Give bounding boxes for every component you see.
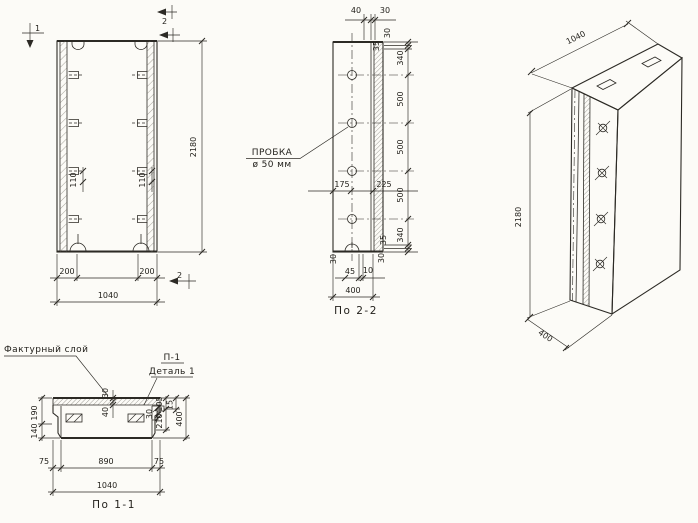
facing-label: Фактурный слой: [4, 345, 88, 355]
dim-190-label: 190: [30, 405, 39, 420]
dim-400-label: 400: [345, 286, 360, 295]
section-2-2-title: По 2-2: [334, 305, 378, 317]
dim-75-right: 75: [154, 457, 164, 466]
left-edge-hatch: [60, 41, 67, 252]
dim-bottom-left-30: 30: [329, 254, 338, 264]
panel-outline: [57, 41, 157, 252]
facing-layer-hatch: [375, 42, 383, 252]
dim-10-label: 10: [363, 266, 373, 275]
iso-dim-depth: 400: [525, 315, 612, 351]
dim-height: 2180: [158, 38, 207, 255]
dim-1040-bottom: 1040: [97, 481, 117, 490]
side-hooks: [69, 72, 148, 223]
right-edge-hatch: [147, 41, 154, 252]
dim-45-label: 45: [345, 267, 355, 276]
dim-layer-30: 30: [101, 388, 110, 398]
dim-890-label: 890: [98, 457, 113, 466]
dim-right-bottom-35: 35: [379, 235, 388, 245]
dim-140-label: 140: [30, 423, 39, 438]
dim-seg-500b: 500: [396, 139, 405, 154]
section-1-1-title: По 1-1: [92, 499, 136, 511]
plug-label-line1: ПРОБКА: [252, 148, 293, 158]
dim-seg-340a: 340: [396, 50, 405, 65]
dim-210-label: 210: [155, 413, 164, 428]
dim-30-label: 30: [380, 6, 390, 15]
dim-1040-label: 1040: [98, 291, 118, 300]
dim-110-right: 110: [138, 172, 147, 187]
section-2-2: ПРОБКА ø 50 мм 40 30 30 35 340 500 500 5…: [246, 6, 418, 317]
dim-15-label: 15: [166, 400, 175, 410]
section-cut-marks: 1 2 2: [22, 5, 196, 289]
front-view: 110 110 2180 200 200 1040 1 2 2: [22, 5, 207, 306]
dim-225-label: 225: [376, 180, 391, 189]
dim-layer-40: 40: [101, 407, 110, 417]
iso-1040-label: 1040: [565, 29, 587, 46]
detail-label: Деталь 1: [149, 367, 195, 377]
facing-callout: Фактурный слой: [4, 345, 108, 396]
dim-75-left: 75: [39, 457, 49, 466]
dim-200-right: 200: [139, 267, 154, 276]
dim-seg-340b: 340: [396, 227, 405, 242]
p1-label: П-1: [164, 353, 181, 363]
iso-dim-height: 2180: [514, 89, 571, 320]
iso-plug-marks: [593, 121, 610, 271]
iso-2180-label: 2180: [514, 207, 523, 227]
dim-right-top-35: 35: [372, 41, 381, 51]
dim-seg-500c: 500: [396, 187, 405, 202]
iso-400-label: 400: [537, 328, 555, 344]
iso-rib-joint: [573, 89, 591, 306]
dim-105-label: 105: [155, 396, 164, 411]
dim-bottom-chains: 75 890 75 1040: [39, 440, 165, 496]
section-outline: [333, 33, 383, 261]
dim-seg-500a: 500: [396, 91, 405, 106]
cut-mark-1-label: 1: [35, 24, 40, 33]
plug-label-line2: ø 50 мм: [252, 160, 291, 170]
cut-mark-2-top-label: 2: [162, 17, 167, 26]
dim-110-left: 110: [69, 172, 78, 187]
dim-175-label: 175: [334, 180, 349, 189]
cut-mark-2-bottom-label: 2: [177, 271, 182, 280]
panel-technical-drawing: 110 110 2180 200 200 1040 1 2 2: [0, 0, 698, 523]
iso-top-recesses: [597, 57, 661, 90]
dim-right-30-label: 30: [145, 409, 154, 419]
drawing-sheet: 110 110 2180 200 200 1040 1 2 2: [0, 0, 698, 523]
dim-right-top-30: 30: [383, 28, 392, 38]
dim-200-left: 200: [59, 267, 74, 276]
dim-right-400-label: 400: [175, 411, 184, 426]
section-1-1: Фактурный слой П-1 Деталь 1 30 40 190 14…: [4, 345, 195, 511]
dim-2180-label: 2180: [189, 137, 198, 157]
iso-view: 1040 2180 400: [514, 20, 682, 351]
dim-width-group: 200 200 1040: [50, 254, 165, 306]
dim-right-bottom-30: 30: [377, 253, 386, 263]
dim-40-label: 40: [351, 6, 361, 15]
